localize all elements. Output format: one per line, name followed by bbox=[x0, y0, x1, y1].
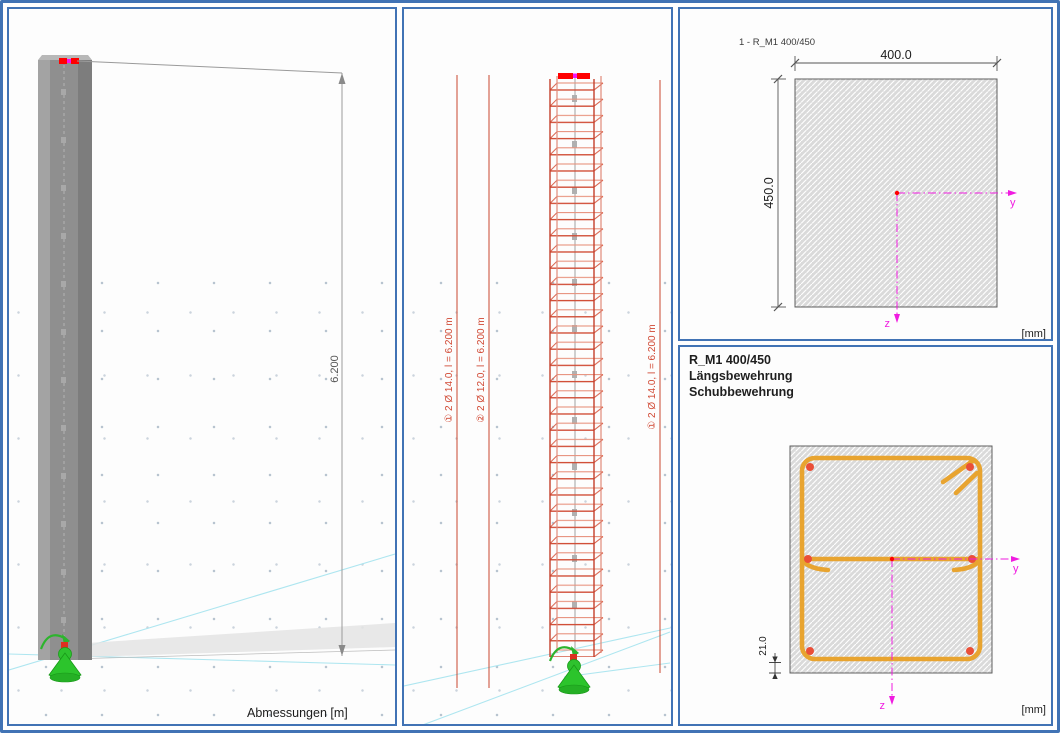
axis-z-label: z bbox=[885, 318, 891, 330]
width-dimension-value: 400.0 bbox=[880, 48, 911, 62]
graphic-printout-page: 6.200 Abmessungen [m] bbox=[0, 0, 1060, 733]
reinforcement-section-drawing: y z 21.0 [mm] bbox=[680, 347, 1051, 724]
cover-dimension-value: 21.0 bbox=[758, 636, 769, 656]
rebar-annotation-left: ① 2 Ø 14.0, l = 6.200 m bbox=[444, 317, 455, 422]
rebar-annotation-right: ① 2 Ø 14.0, l = 6.200 m bbox=[647, 324, 658, 429]
column-shadow bbox=[87, 623, 395, 657]
view-caption: Abmessungen [m] bbox=[247, 706, 348, 720]
reinforcement-3d-drawing: ① 2 Ø 14.0, l = 6.200 m ② 2 Ø 12.0, l = … bbox=[404, 9, 671, 724]
height-dimension: 6.200 bbox=[77, 61, 346, 656]
viewport-dimensions-3d[interactable]: 6.200 Abmessungen [m] bbox=[7, 7, 397, 726]
reinforcement-cage-3d bbox=[550, 75, 604, 657]
height-dimension-value: 6.200 bbox=[329, 355, 341, 383]
axis-y-label: y bbox=[1013, 563, 1019, 575]
dimensions-3d-drawing: 6.200 bbox=[9, 9, 395, 724]
centroid-point bbox=[895, 191, 899, 195]
centroid-point bbox=[890, 557, 894, 561]
viewport-reinforcement-3d[interactable]: ① 2 Ø 14.0, l = 6.200 m ② 2 Ø 12.0, l = … bbox=[402, 7, 673, 726]
rebar-annotation-middle: ② 2 Ø 12.0, l = 6.200 m bbox=[476, 317, 487, 422]
units-label: [mm] bbox=[1022, 328, 1046, 339]
grid-lines-cyan bbox=[404, 628, 670, 724]
cross-section-drawing: 400.0 450.0 y z [mm] bbox=[680, 9, 1051, 339]
units-label: [mm] bbox=[1022, 704, 1046, 716]
height-dimension-value: 450.0 bbox=[762, 177, 776, 208]
axis-z-label: z bbox=[880, 700, 886, 712]
viewport-reinforcement-section[interactable]: R_M1 400/450 Längsbewehrung Schubbewehru… bbox=[678, 345, 1053, 726]
viewport-cross-section[interactable]: 1 - R_M1 400/450 400.0 bbox=[678, 7, 1053, 341]
cover-dimension: 21.0 bbox=[758, 636, 781, 679]
concrete-column-3d bbox=[38, 55, 92, 660]
axis-y-label: y bbox=[1010, 197, 1016, 209]
